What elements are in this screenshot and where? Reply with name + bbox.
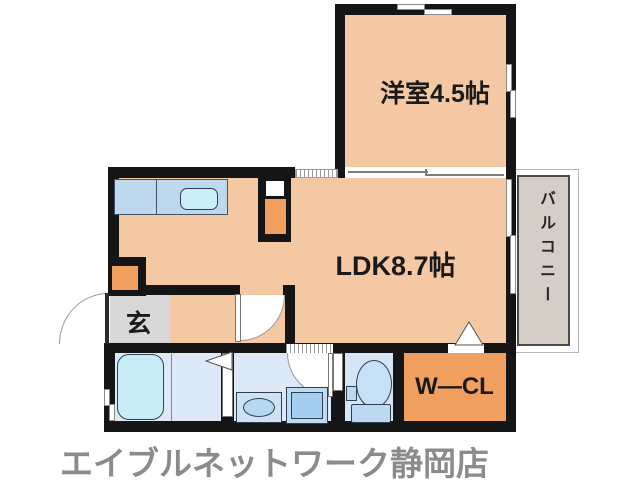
wall-western-left — [335, 4, 345, 178]
bathroom-divider-line — [171, 353, 172, 421]
ldk-label: LDK8.7帖 — [308, 244, 483, 283]
toilet-door — [333, 353, 343, 391]
genkan-label: 玄 — [126, 304, 151, 340]
toilet-bowl — [356, 360, 392, 408]
entrance-door-leaf — [105, 293, 109, 344]
vanity-sink-bowl — [243, 398, 275, 417]
washroom-door-leaf — [328, 353, 333, 397]
store-name-watermark: エイブルネットワーク静岡店 — [60, 437, 489, 480]
column-utility-unit — [265, 199, 286, 234]
column-duct-white — [266, 181, 284, 196]
kitchen-counter-divider — [156, 180, 157, 214]
western-room-label: 洋室4.5帖 — [350, 74, 520, 110]
room-partition-track — [348, 171, 428, 173]
washroom-entry-opening — [286, 344, 333, 353]
hall-door-leaf — [235, 294, 241, 342]
wall-toilet-wcl-divider — [393, 343, 404, 432]
entrance-door-swing-icon — [59, 293, 108, 344]
room-partition-tick — [425, 169, 427, 176]
wall-wcl-right — [506, 343, 516, 432]
western-top-window-icon — [397, 4, 425, 10]
toilet-button — [346, 386, 357, 401]
floorplan-image: 洋室4.5帖 LDK8.7帖 バルコニー 玄 W—CL エイブルネットワーク静岡… — [0, 0, 640, 480]
toilet-tank — [351, 404, 391, 423]
balcony-sliding-door-icon — [510, 235, 516, 294]
bathtub — [117, 354, 164, 420]
western-top-window-icon — [424, 9, 452, 15]
kitchen-window-icon — [295, 169, 338, 178]
wall-hall-divider — [285, 285, 295, 352]
bathroom-window-icon — [109, 404, 115, 421]
room-partition-track — [426, 174, 504, 176]
balcony-label: バルコニー — [533, 190, 557, 310]
washing-machine-pan-inner — [291, 392, 323, 419]
wcl-folding-door-icon — [453, 320, 485, 346]
pipe-space-unit — [112, 266, 138, 290]
bathroom-folding-door-icon — [204, 351, 234, 371]
balcony-sliding-door-icon — [506, 179, 512, 237]
wcl-label: W—CL — [407, 373, 502, 401]
kitchen-sink — [180, 188, 218, 210]
